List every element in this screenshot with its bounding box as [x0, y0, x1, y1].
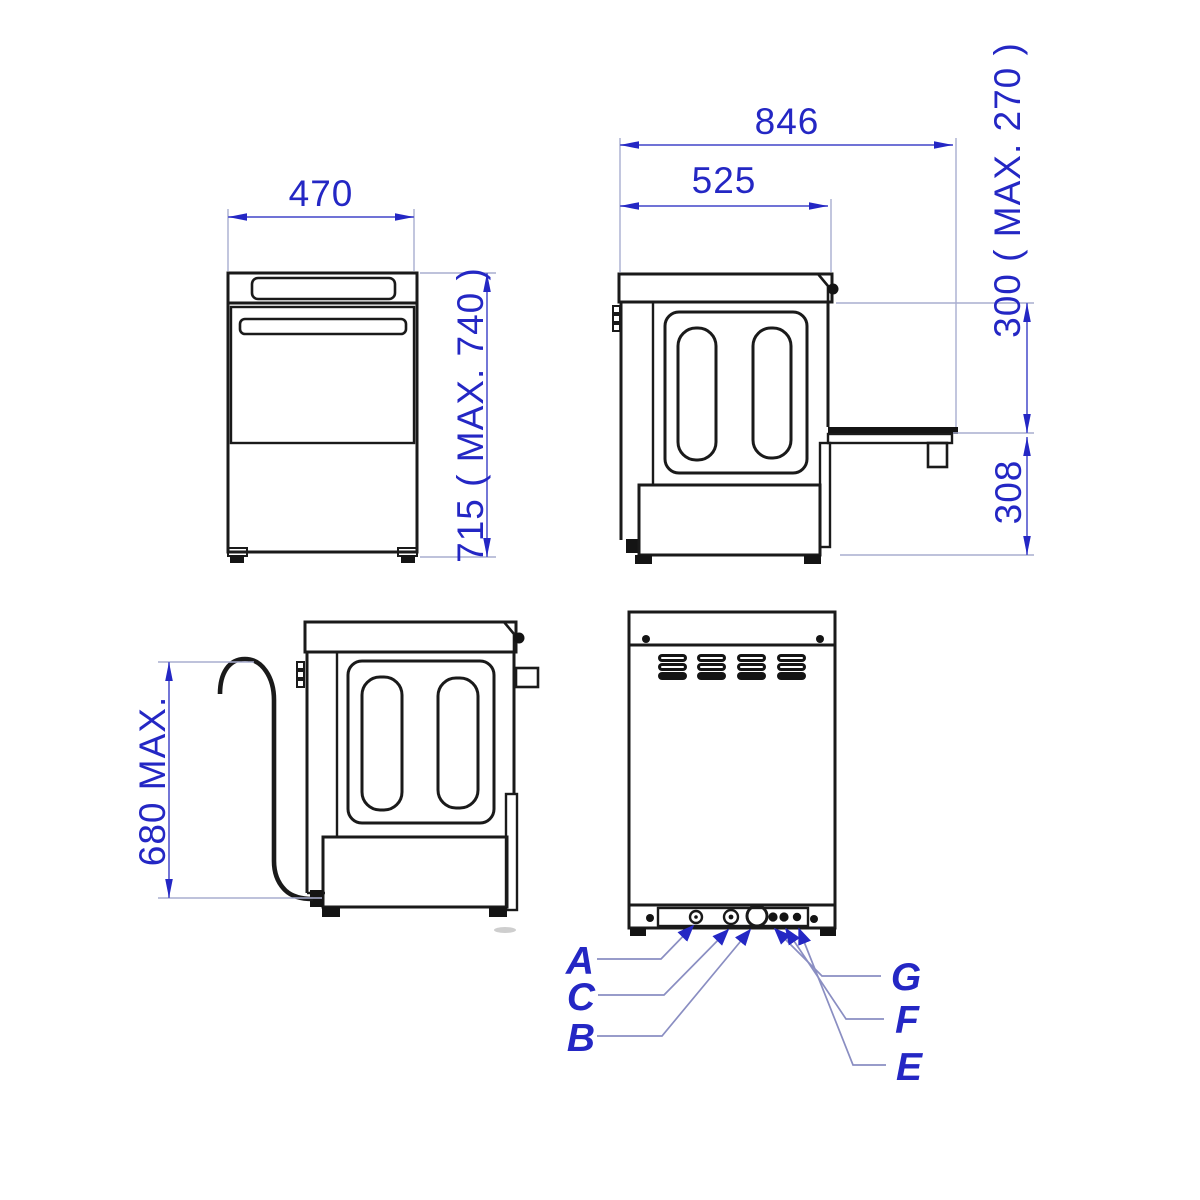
side-rear-foot	[626, 539, 639, 553]
vent-highlight	[661, 666, 684, 668]
side-left-foot-pad	[635, 555, 652, 564]
dimension-arrow	[620, 202, 639, 210]
connection-port-g	[768, 912, 777, 921]
dimension-arrow	[1023, 536, 1031, 555]
rear-left-foot-pad	[630, 928, 646, 936]
screw	[642, 635, 650, 643]
hose-view-door-panel	[348, 661, 494, 823]
leader-c	[598, 930, 728, 995]
front-left-foot-pad	[230, 555, 244, 563]
vent-highlight	[740, 657, 763, 659]
rear-view: A C B G F E	[565, 612, 923, 1089]
vent-highlight	[661, 657, 684, 659]
hinge-tab	[297, 662, 304, 669]
vent-group	[697, 654, 726, 680]
label-g: G	[891, 956, 921, 999]
door-level-value: 300 ( MAX. 270 )	[987, 42, 1028, 338]
connection-port-c-center	[729, 915, 734, 920]
dimension-arrow	[228, 213, 247, 221]
hose-height-value: 680 MAX.	[132, 696, 173, 866]
leader-e	[799, 929, 886, 1065]
dimension-arrow	[934, 141, 953, 149]
vent-highlight	[780, 657, 803, 659]
front-right-foot-pad	[401, 555, 415, 563]
vent-highlight	[700, 666, 723, 668]
hinge-tab	[613, 315, 620, 322]
screw	[646, 914, 654, 922]
door-handle-slot	[240, 319, 406, 334]
dimension-arrow	[1023, 414, 1031, 433]
connection-port-f	[779, 912, 788, 921]
lid-knob	[514, 633, 525, 644]
side-door-panel	[665, 312, 807, 473]
lid-knob	[828, 284, 839, 295]
label-c: C	[567, 976, 596, 1019]
dimension-drawing: 470 715 ( MAX. 740 ) 846 525	[0, 0, 1200, 1200]
front-view: 470 715 ( MAX. 740 )	[228, 173, 496, 563]
lid-corner-bevel	[818, 274, 828, 302]
print-artifact	[494, 927, 516, 933]
vent-group	[737, 654, 766, 680]
front-height-value: 715 ( MAX. 740 )	[450, 267, 491, 563]
hose-view-lid	[305, 622, 516, 652]
side-view-drain-hose: 680 MAX.	[132, 622, 538, 933]
side-view-open-door: 846 525 300 ( M	[613, 42, 1034, 564]
label-f: F	[895, 999, 920, 1042]
screw	[810, 915, 818, 923]
hose-view-panel-recess	[438, 678, 478, 808]
front-width-value: 470	[289, 173, 354, 214]
label-e: E	[896, 1046, 923, 1089]
side-panel-recess	[678, 328, 716, 460]
dimension-arrow	[809, 202, 828, 210]
screw	[816, 635, 824, 643]
side-lid	[619, 274, 832, 302]
under-door-value: 308	[988, 460, 1029, 525]
hose-view-left-foot-pad	[322, 907, 340, 917]
vent-slat	[737, 672, 766, 680]
open-door-handle	[928, 443, 947, 467]
depth-total-value: 846	[755, 101, 820, 142]
rear-right-foot-pad	[820, 928, 836, 936]
vent-group	[658, 654, 687, 680]
front-door-outline	[231, 307, 414, 443]
hinge-tab	[297, 680, 304, 687]
technical-drawing-canvas: 470 715 ( MAX. 740 ) 846 525	[0, 0, 1200, 1200]
hinge-tab	[613, 306, 620, 313]
hinge-tab	[297, 671, 304, 678]
front-body-outline	[228, 273, 417, 552]
dimension-arrow	[1023, 437, 1031, 456]
hose-view-panel-recess	[362, 677, 402, 810]
vent-highlight	[740, 666, 763, 668]
vent-slat	[658, 672, 687, 680]
dimension-arrow	[395, 213, 414, 221]
open-door-underside	[828, 434, 952, 443]
dimension-arrow	[165, 879, 173, 898]
vent-slat	[697, 672, 726, 680]
vent-highlight	[700, 657, 723, 659]
vent-louvers	[658, 654, 806, 680]
overflow-spout	[516, 668, 538, 687]
dimension-arrow	[620, 141, 639, 149]
hose-view-right-foot-pad	[489, 907, 507, 917]
lid-corner-bevel	[504, 622, 514, 652]
vent-highlight	[780, 666, 803, 668]
depth-body-value: 525	[692, 160, 757, 201]
side-right-foot-pad	[804, 555, 821, 564]
drain-hose	[220, 659, 313, 899]
connection-port-a-center	[694, 915, 698, 919]
vent-group	[777, 654, 806, 680]
leader-f	[786, 929, 884, 1019]
hinge-tab	[613, 324, 620, 331]
vent-slat	[777, 672, 806, 680]
side-panel-recess	[753, 328, 791, 458]
top-panel-slot	[252, 278, 395, 299]
connection-port-e	[793, 913, 801, 921]
label-b: B	[567, 1017, 595, 1060]
side-base-section	[639, 485, 820, 555]
hose-view-base-section	[323, 837, 507, 907]
dimension-arrow	[165, 662, 173, 681]
